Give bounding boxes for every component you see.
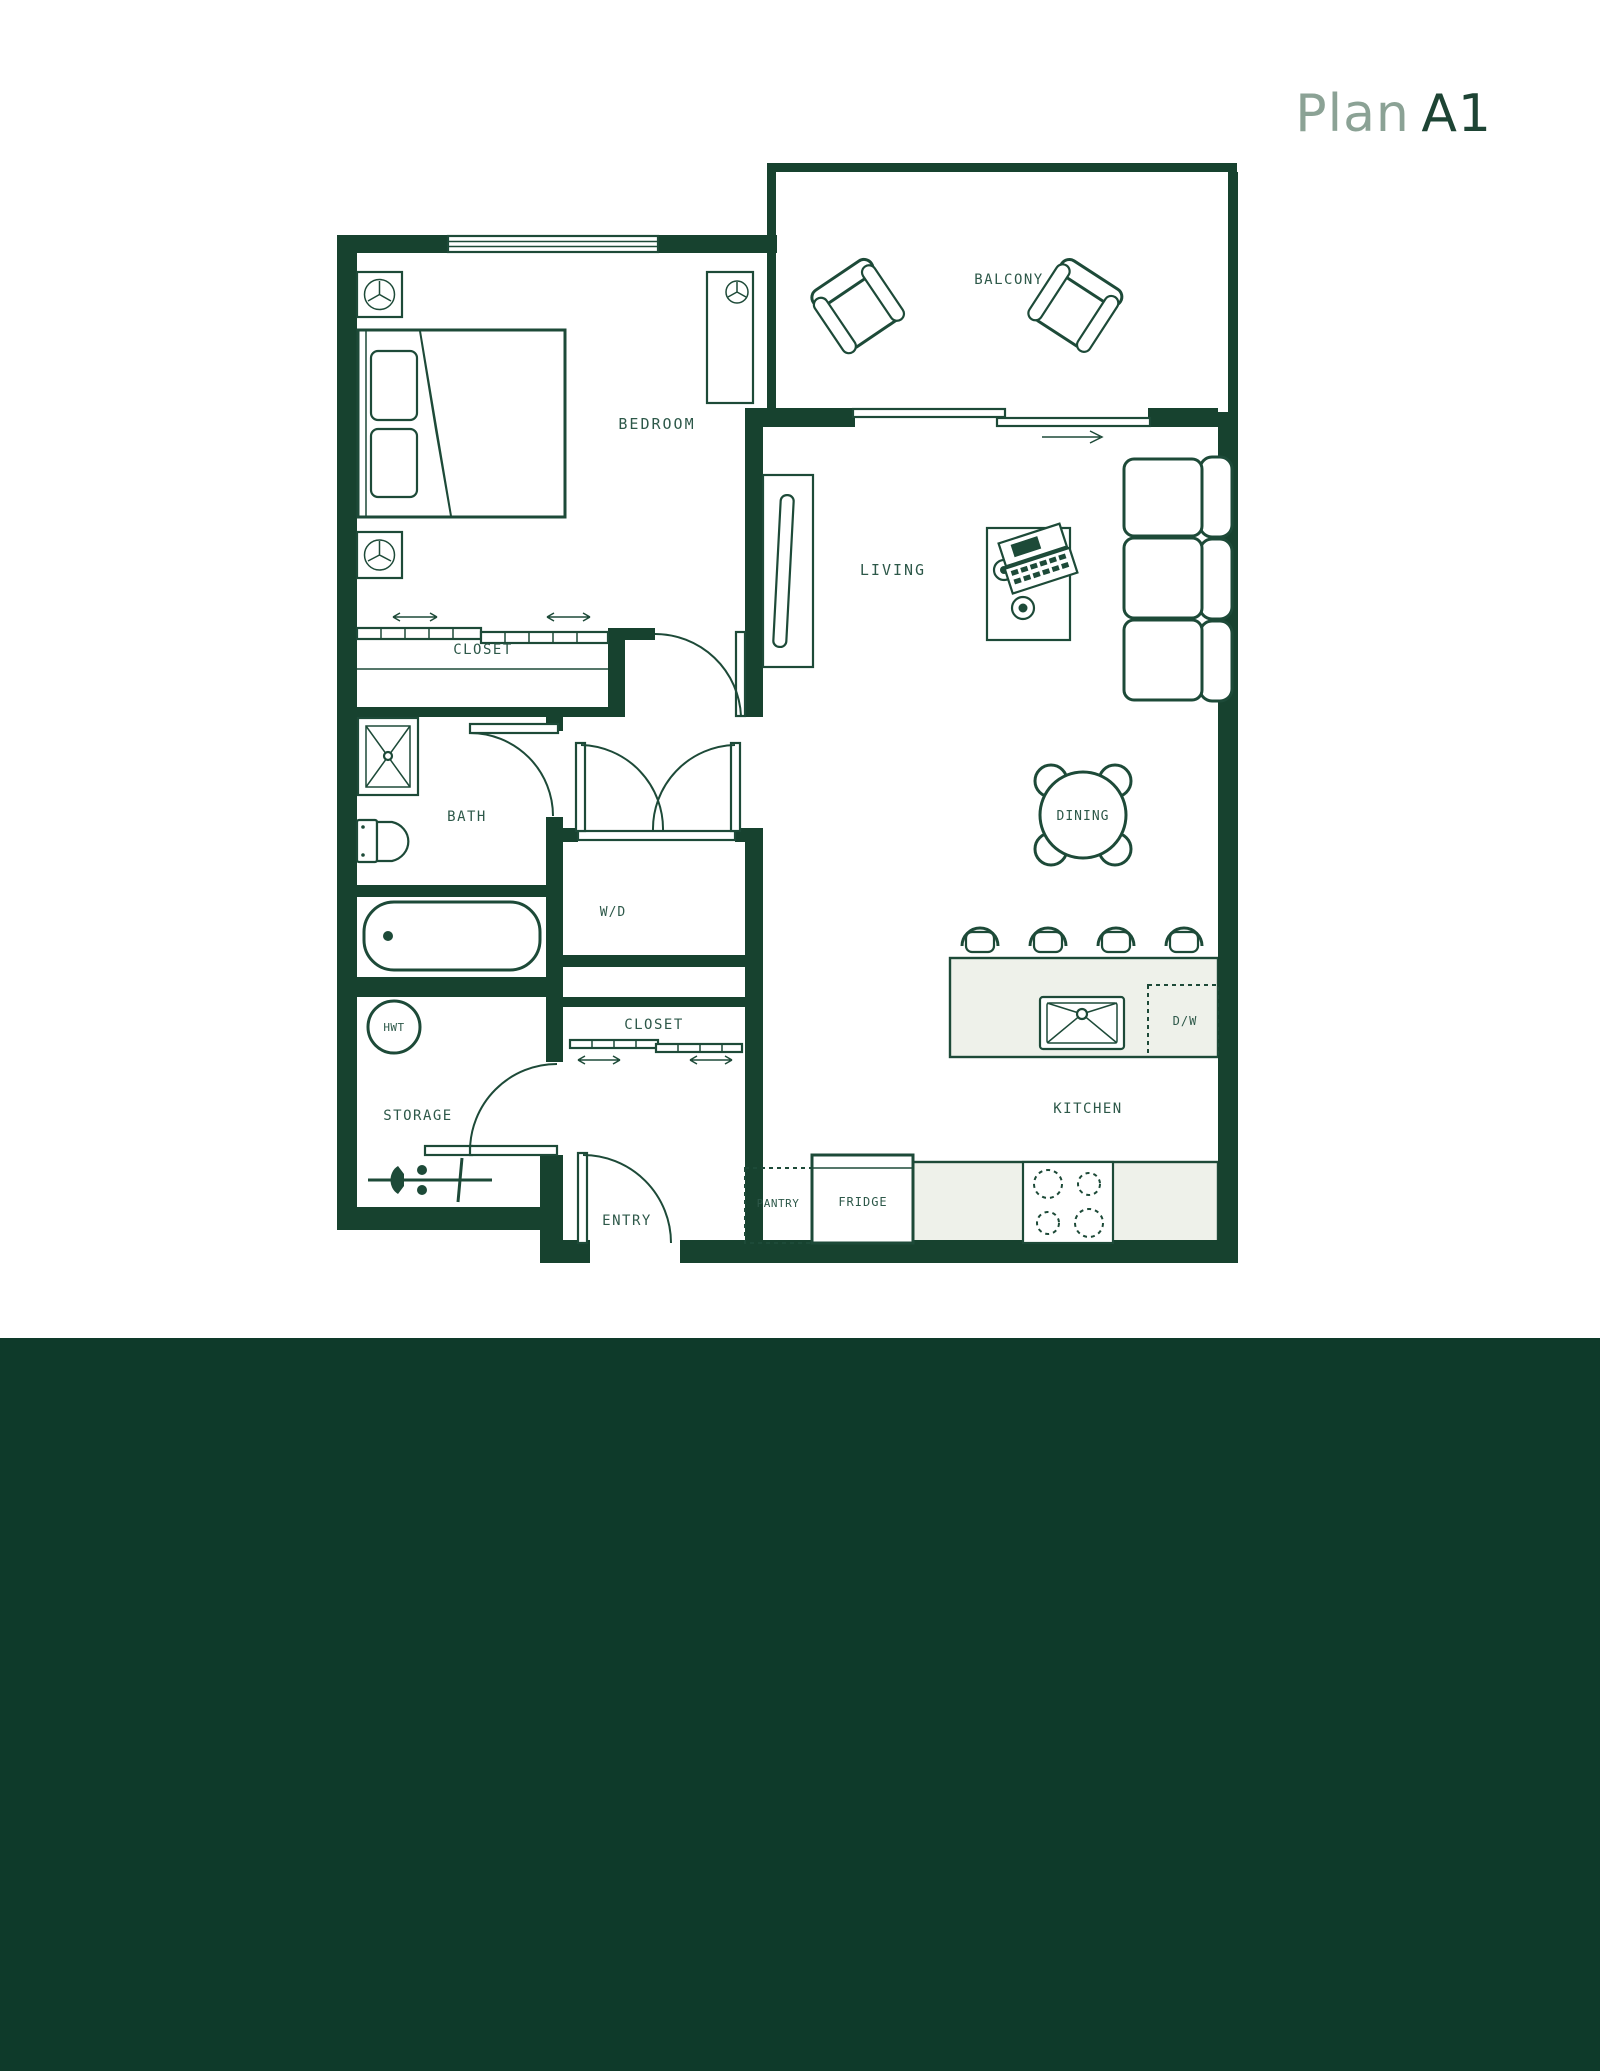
floor-plan: BEDROOM BALCONY LIVING CLOSET BATH W/D D… [330, 150, 1250, 1275]
wd-closet-doors [576, 743, 740, 840]
room-label-closet-entry: CLOSET [624, 1017, 684, 1033]
balcony-chair [1026, 255, 1126, 355]
room-label-entry: ENTRY [602, 1213, 652, 1229]
info-panel: PlanA1 Area 705 sq. ft. Description 1 Be… [0, 1338, 1600, 2071]
balcony-slider-door [853, 409, 1150, 443]
sofa [1124, 457, 1232, 701]
ceiling-fan-icon [357, 272, 402, 317]
room-label-hwt: HWT [383, 1021, 404, 1034]
room-label-dw: D/W [1173, 1014, 1198, 1028]
room-label-bath: BATH [447, 809, 487, 825]
bathtub [364, 902, 540, 970]
bedroom-door [655, 632, 745, 716]
room-label-balcony: BALCONY [974, 272, 1044, 288]
tv-console [763, 475, 813, 667]
room-label-dining: DINING [1057, 809, 1110, 824]
dresser [707, 272, 753, 403]
bedroom-window [448, 236, 658, 252]
bed [358, 330, 565, 517]
balcony-chair [807, 256, 907, 356]
room-label-fridge: FRIDGE [838, 1195, 887, 1209]
room-label-closet-bedroom: CLOSET [453, 642, 513, 658]
room-label-storage: STORAGE [383, 1108, 453, 1124]
bath-door [470, 724, 558, 816]
floorplan-sheet: PlanA1 [0, 0, 1600, 2071]
kitchen-sink [1040, 997, 1124, 1049]
toilet [357, 820, 408, 862]
entry-closet-doors [570, 1040, 742, 1064]
ceiling-fan-icon [357, 532, 402, 578]
room-label-kitchen: KITCHEN [1053, 1101, 1123, 1117]
bicycle-icon [368, 1158, 492, 1202]
entry-door [578, 1153, 671, 1243]
page-title-prefix: Plan [1295, 84, 1410, 144]
bar-stools [962, 928, 1202, 952]
bedroom-closet-doors [357, 613, 608, 669]
room-label-bedroom: BEDROOM [618, 415, 695, 433]
shower [358, 718, 418, 795]
page-title: PlanA1 [1295, 84, 1492, 144]
stove [1023, 1162, 1113, 1243]
room-label-living: LIVING [860, 561, 926, 579]
room-label-pantry: PANTRY [757, 1197, 800, 1210]
desk [987, 523, 1077, 640]
page-title-code: A1 [1421, 84, 1492, 144]
room-label-wd: W/D [600, 905, 626, 920]
